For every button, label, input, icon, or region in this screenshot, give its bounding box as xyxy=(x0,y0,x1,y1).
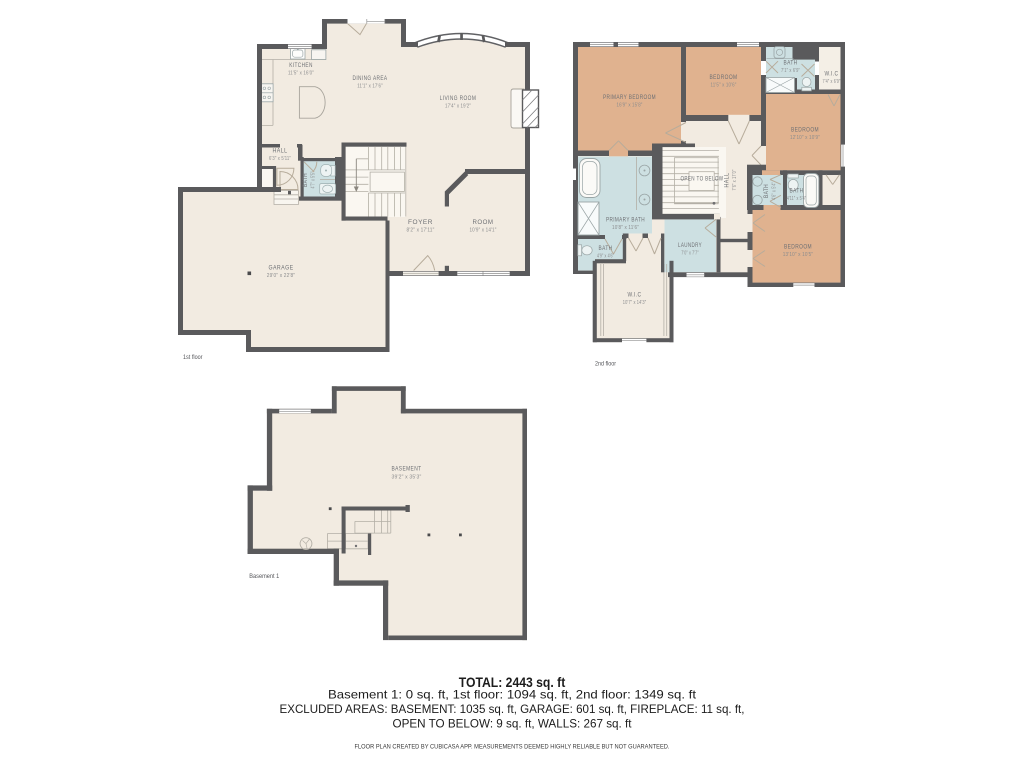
svg-text:1st floor: 1st floor xyxy=(183,354,203,361)
svg-text:13'10" x 10'5": 13'10" x 10'5" xyxy=(783,252,814,258)
svg-text:6'3" x 5'11": 6'3" x 5'11" xyxy=(269,156,291,162)
svg-text:BATH: BATH xyxy=(784,60,798,67)
svg-text:8'2" x 17'11": 8'2" x 17'11" xyxy=(407,228,435,234)
svg-text:BEDROOM: BEDROOM xyxy=(791,127,819,134)
svg-text:KITCHEN: KITCHEN xyxy=(289,62,313,69)
svg-text:7'1" x 6'9": 7'1" x 6'9" xyxy=(781,68,800,74)
svg-text:BATH: BATH xyxy=(599,245,613,252)
svg-text:W.I.C: W.I.C xyxy=(825,71,839,78)
svg-text:11'5" x 16'0": 11'5" x 16'0" xyxy=(288,71,314,77)
svg-text:10'8" x 11'6": 10'8" x 11'6" xyxy=(612,225,639,231)
svg-text:BASEMENT: BASEMENT xyxy=(392,466,422,473)
svg-text:FLOOR PLAN CREATED BY CUBICASA: FLOOR PLAN CREATED BY CUBICASA APP. MEAS… xyxy=(355,744,670,751)
svg-text:BEDROOM: BEDROOM xyxy=(784,244,812,251)
svg-text:17'4" x 19'2": 17'4" x 19'2" xyxy=(445,104,471,110)
svg-text:BATH: BATH xyxy=(790,188,804,195)
svg-text:HALL: HALL xyxy=(724,173,731,188)
svg-text:7'6" x 17'0": 7'6" x 17'0" xyxy=(732,170,738,191)
svg-text:ROOM: ROOM xyxy=(473,219,494,226)
svg-text:4'6" x 5'4": 4'6" x 5'4" xyxy=(772,182,778,200)
svg-text:10'7" x 14'3": 10'7" x 14'3" xyxy=(623,300,647,306)
svg-text:16'9" x 15'8": 16'9" x 15'8" xyxy=(617,103,643,109)
svg-text:OPEN TO BELOW: 9 sq. ft, WALLS: OPEN TO BELOW: 9 sq. ft, WALLS: 267 sq. … xyxy=(393,716,633,730)
svg-text:EXCLUDED AREAS: BASEMENT: 1035: EXCLUDED AREAS: BASEMENT: 1035 sq. ft, G… xyxy=(280,702,745,716)
svg-text:7'0" x 7'7": 7'0" x 7'7" xyxy=(681,251,699,257)
svg-text:HALL: HALL xyxy=(273,148,288,155)
svg-text:39'2" x 35'3": 39'2" x 35'3" xyxy=(392,475,422,481)
svg-text:FOYER: FOYER xyxy=(408,219,433,226)
svg-text:10'9" x 14'1": 10'9" x 14'1" xyxy=(470,228,497,234)
svg-text:BEDROOM: BEDROOM xyxy=(710,74,738,81)
svg-text:GARAGE: GARAGE xyxy=(269,265,294,272)
svg-text:12'10" x 10'9": 12'10" x 10'9" xyxy=(790,135,820,141)
svg-text:4'11" x 5'4": 4'11" x 5'4" xyxy=(787,196,807,202)
svg-text:Basement 1: Basement 1 xyxy=(249,573,279,580)
svg-text:W.I.C: W.I.C xyxy=(628,292,642,299)
svg-text:LIVING ROOM: LIVING ROOM xyxy=(440,95,477,102)
svg-text:11'1" x 17'6": 11'1" x 17'6" xyxy=(357,84,383,90)
svg-text:BATH: BATH xyxy=(763,184,770,198)
svg-text:LAUNDRY: LAUNDRY xyxy=(678,242,702,249)
svg-text:29'0" x 22'8": 29'0" x 22'8" xyxy=(267,273,296,279)
svg-text:4'9" x 4'6": 4'9" x 4'6" xyxy=(597,254,614,260)
svg-text:Basement 1: 0 sq. ft, 1st floo: Basement 1: 0 sq. ft, 1st floor: 1094 sq… xyxy=(328,688,697,702)
svg-text:OPEN TO BELOW: OPEN TO BELOW xyxy=(681,176,724,183)
svg-text:7'4" x 6'9": 7'4" x 6'9" xyxy=(823,79,841,85)
svg-text:11'5" x 10'6": 11'5" x 10'6" xyxy=(711,83,737,89)
svg-text:4'7" x 5'5": 4'7" x 5'5" xyxy=(311,172,317,189)
svg-text:2nd floor: 2nd floor xyxy=(595,361,617,368)
svg-text:PRIMARY BATH: PRIMARY BATH xyxy=(606,217,645,224)
svg-text:BATH: BATH xyxy=(302,173,309,187)
svg-text:PRIMARY BEDROOM: PRIMARY BEDROOM xyxy=(603,94,656,101)
svg-text:DINING AREA: DINING AREA xyxy=(353,75,388,82)
